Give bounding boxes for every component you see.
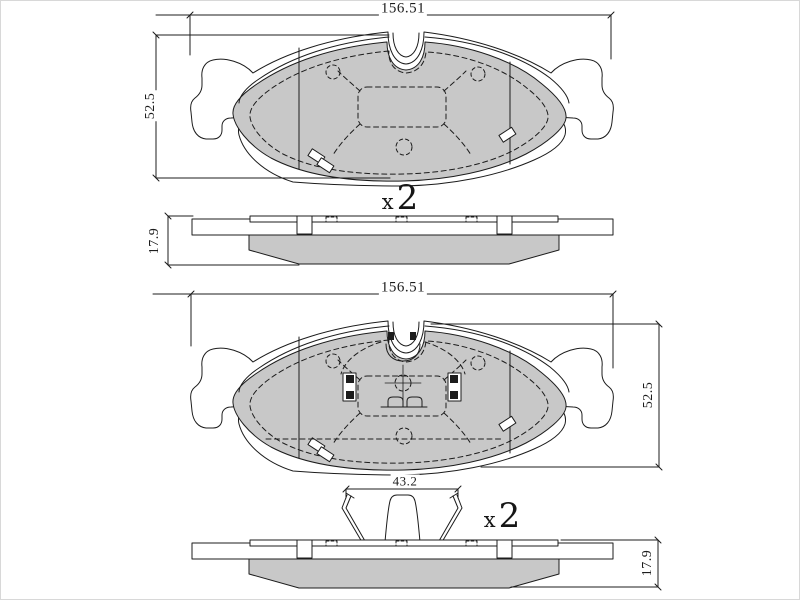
dim-width-bottom: 156.51 (379, 281, 427, 296)
dim-clip-width: 43.2 (391, 475, 420, 488)
dim-thickness-top: 17.9 (148, 226, 162, 257)
top-side-view-drawing (165, 213, 613, 268)
quantity-label-bottom: x 2 (484, 499, 520, 533)
quantity-label-top: x 2 (382, 181, 418, 215)
dim-thickness-bottom: 17.9 (641, 548, 655, 579)
dim-height-bottom: 52.5 (642, 380, 656, 411)
dim-height-top: 52.5 (144, 91, 158, 122)
top-front-view-drawing (153, 12, 614, 186)
quantity-value: 2 (397, 181, 419, 215)
dim-width-top: 156.51 (379, 2, 427, 17)
quantity-value: 2 (499, 499, 521, 533)
quantity-prefix: x (382, 192, 394, 213)
spring-clip-drawing (342, 486, 462, 542)
quantity-prefix: x (484, 510, 496, 531)
brake-pad-technical-drawing: 156.51 52.5 17.9 x 2 156.51 52.5 43.2 17… (0, 0, 800, 600)
bottom-front-view-drawing (153, 291, 662, 475)
bottom-side-view-drawing (192, 537, 661, 590)
drawing-linework (1, 1, 800, 600)
